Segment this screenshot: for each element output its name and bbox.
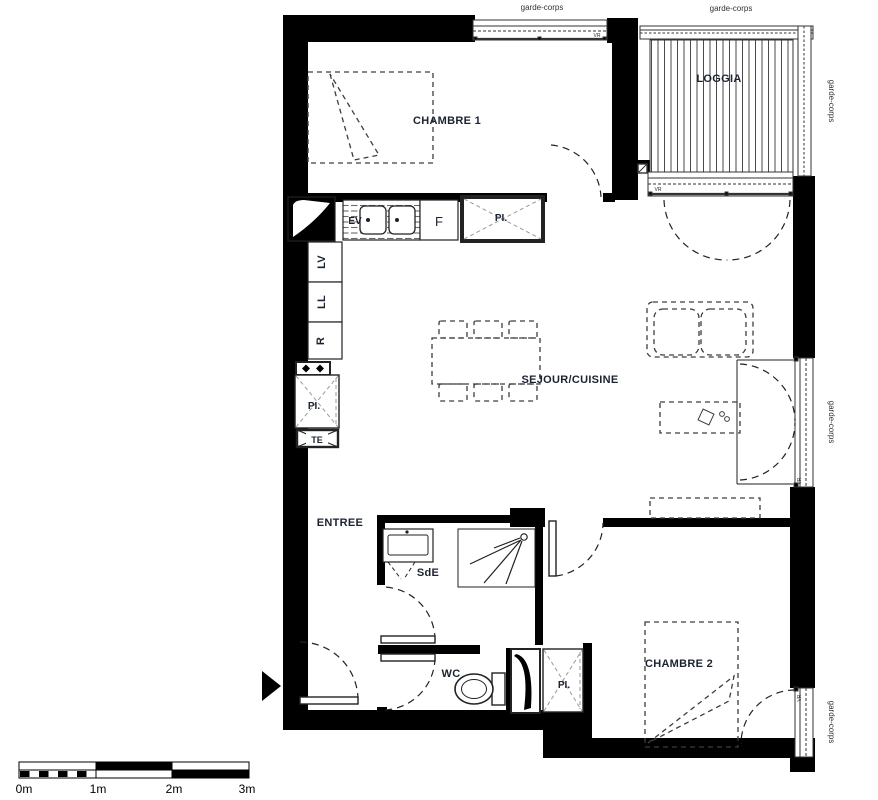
label-pi-kitchen: PI. xyxy=(495,213,507,224)
label-chambre1: CHAMBRE 1 xyxy=(413,115,481,127)
label-garde-corps-top-right: garde-corps xyxy=(710,4,753,13)
scale-label-1m: 1m xyxy=(90,782,107,796)
label-ll: LL xyxy=(316,295,328,309)
railing-loggia-right xyxy=(798,26,811,176)
label-f: F xyxy=(435,214,443,229)
wall-top xyxy=(283,15,475,42)
wall-chambre1-south-b xyxy=(603,193,615,202)
floor-plan-svg: CHAMBRE 1 LOGGIA SEJOUR/CUISINE ENTREE S… xyxy=(0,0,878,800)
label-vr-3: VR xyxy=(797,477,803,484)
label-vr-4: VR xyxy=(797,694,803,701)
wall-sde-west-stub xyxy=(377,707,387,718)
label-garde-corps-right-middle: garde-corps xyxy=(827,401,836,444)
label-r: R xyxy=(315,337,327,345)
label-garde-corps-right-lower: garde-corps xyxy=(827,701,836,744)
wall-sde-north xyxy=(377,515,513,523)
floor-plan-page: CHAMBRE 1 LOGGIA SEJOUR/CUISINE ENTREE S… xyxy=(0,0,878,800)
toilet xyxy=(455,673,505,705)
label-sde: SdE xyxy=(417,567,439,579)
railing-loggia-top xyxy=(640,26,813,39)
label-pi-hall: PI. xyxy=(308,401,320,412)
window-sejour xyxy=(794,357,813,487)
scale-label-2m: 2m xyxy=(166,782,183,796)
label-garde-corps-right-upper: garde-corps xyxy=(827,80,836,123)
label-garde-corps-top-left: garde-corps xyxy=(521,3,564,12)
window-chambre1 xyxy=(473,20,607,40)
label-loggia: LOGGIA xyxy=(696,73,741,85)
duct-kitchen xyxy=(288,197,335,241)
window-loggia xyxy=(648,172,793,196)
wall-loggia-west xyxy=(612,20,638,200)
duct-wc xyxy=(511,649,540,713)
label-vr-1: VR xyxy=(594,33,601,39)
wall-south-left xyxy=(283,710,545,730)
loggia-post xyxy=(638,164,647,173)
label-chambre2: CHAMBRE 2 xyxy=(645,658,713,670)
wall-chambre2-west xyxy=(583,643,592,740)
label-pi-wc: PI. xyxy=(558,680,570,691)
label-lv: LV xyxy=(316,255,328,269)
label-vr-2: VR xyxy=(655,187,662,193)
wall-wc-north xyxy=(378,645,480,654)
wall-right-mid xyxy=(790,487,815,688)
scale-label-0m: 0m xyxy=(16,782,33,796)
shower xyxy=(458,529,535,587)
label-ev: EV xyxy=(348,216,362,227)
wall-sde-east xyxy=(535,519,543,645)
loggia-deck-hatch xyxy=(650,40,793,172)
scale-label-3m: 3m xyxy=(239,782,256,796)
label-te: TE xyxy=(311,435,323,445)
label-wc: WC xyxy=(442,668,461,680)
label-entree: ENTREE xyxy=(317,517,363,529)
label-sejour: SEJOUR/CUISINE xyxy=(521,374,618,386)
wall-chambre2-north xyxy=(603,518,793,527)
vent-box xyxy=(296,362,330,375)
wall-right-upper xyxy=(793,176,815,358)
